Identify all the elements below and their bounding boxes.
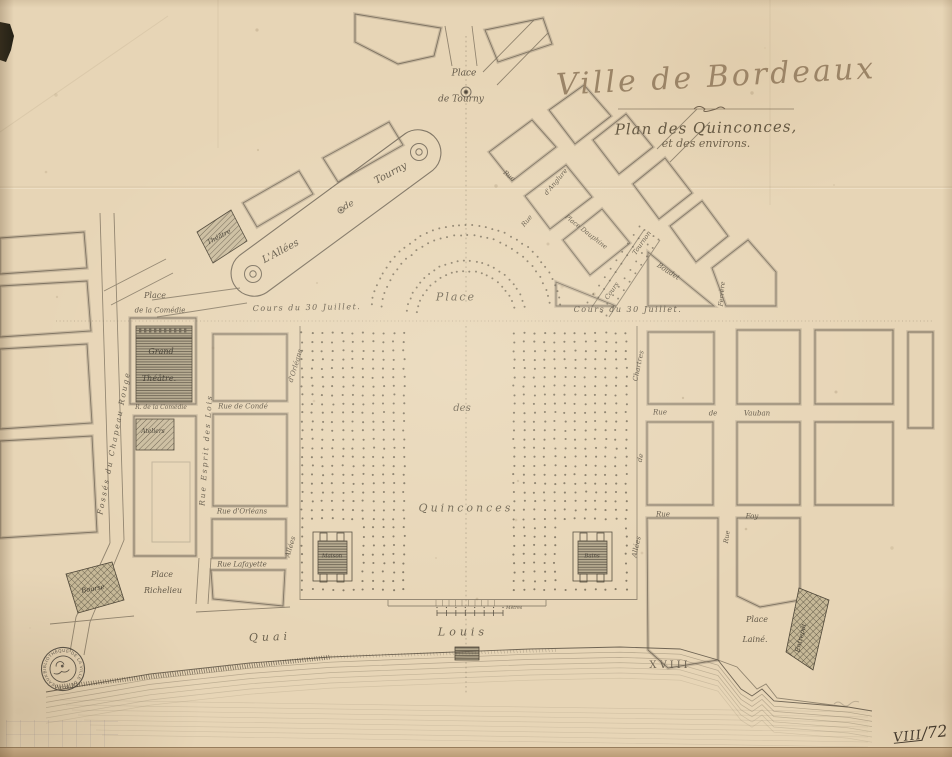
pavilion-right	[573, 532, 612, 582]
allees-de-tourny	[231, 87, 471, 296]
title-divider-ornament	[616, 103, 796, 113]
shelfmark-roman: VIII	[893, 728, 923, 746]
stamp-ring-text: BIBLIOTHÈQUE DE LA VILLE DE BORDEAUX	[37, 643, 88, 694]
river-bank	[46, 600, 872, 747]
bourse-building	[66, 562, 124, 613]
svg-text:BIBLIOTHÈQUE DE LA VILLE DE BO: BIBLIOTHÈQUE DE LA VILLE DE BORDEAUX	[37, 643, 88, 694]
map-subtitle-2: et des environs.	[556, 137, 856, 150]
map-title: Ville de Bordeaux	[555, 52, 856, 103]
corner-grid-stamp	[6, 720, 118, 748]
map-title-block: Ville de Bordeaux Plan des Quinconces, e…	[556, 60, 856, 150]
ink-blot	[0, 22, 14, 62]
sheet-bottom-edge	[0, 747, 952, 757]
stamp-emblem	[51, 660, 69, 675]
ateliers-building	[136, 419, 174, 450]
shelfmark-fraction: /72	[921, 721, 949, 743]
scale-bar-label: Mètres	[506, 606, 522, 611]
grand-theatre-building	[136, 326, 192, 402]
map-sheet: BIBLIOTHÈQUE DE LA VILLE DE BORDEAUX Pla…	[0, 0, 952, 757]
scale-bar	[436, 607, 503, 616]
library-stamp: BIBLIOTHÈQUE DE LA VILLE DE BORDEAUX	[37, 643, 89, 695]
pavilion-left	[313, 532, 352, 582]
quinconces-tree-dots	[300, 224, 659, 591]
